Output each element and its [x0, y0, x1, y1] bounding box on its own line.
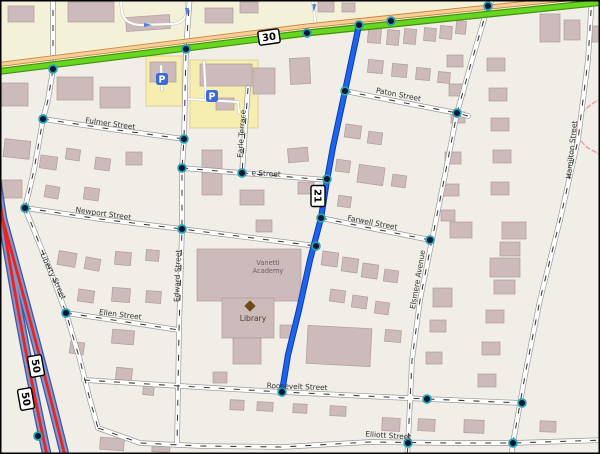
- route-node[interactable]: [426, 236, 434, 244]
- route-node[interactable]: [317, 214, 325, 222]
- building: [450, 222, 472, 238]
- building: [330, 406, 347, 417]
- building: [441, 210, 455, 221]
- building: [335, 159, 351, 173]
- building: [433, 288, 452, 307]
- building: [8, 6, 34, 22]
- building: [318, 0, 334, 12]
- route-shield-30: 30: [258, 29, 281, 46]
- route-node[interactable]: [423, 395, 431, 403]
- building: [240, 190, 264, 205]
- building: [447, 55, 463, 67]
- building: [491, 182, 509, 195]
- building: [341, 257, 359, 273]
- building: [100, 87, 130, 108]
- route-node[interactable]: [182, 45, 190, 53]
- building: [418, 419, 436, 432]
- route-node[interactable]: [303, 29, 311, 37]
- building: [455, 21, 466, 35]
- building: [416, 67, 431, 80]
- academy-label: Academy: [253, 267, 284, 275]
- building: [489, 88, 507, 101]
- building: [367, 131, 383, 145]
- building: [426, 352, 442, 364]
- route-shield-50: 50: [27, 354, 44, 377]
- route-node[interactable]: [312, 242, 320, 250]
- map-viewport[interactable]: 30215050PPLibraryVanettiAcademyFulmer St…: [0, 0, 600, 454]
- building: [367, 59, 383, 73]
- building: [100, 437, 125, 451]
- building: [321, 251, 339, 267]
- building: [337, 195, 351, 208]
- building: [478, 374, 496, 387]
- building: [502, 222, 526, 239]
- building: [83, 187, 100, 201]
- route-node[interactable]: [180, 135, 188, 143]
- building: [438, 71, 451, 83]
- route-node[interactable]: [341, 87, 349, 95]
- building: [44, 185, 60, 199]
- route-node[interactable]: [518, 399, 526, 407]
- academy-label: Vanetti: [256, 259, 279, 267]
- building: [126, 152, 142, 165]
- building: [256, 220, 272, 232]
- building: [77, 289, 95, 303]
- map-canvas[interactable]: 30215050PPLibraryVanettiAcademyFulmer St…: [0, 0, 600, 454]
- route-shield-number: 21: [312, 189, 323, 203]
- building: [486, 310, 504, 323]
- route-node[interactable]: [39, 115, 47, 123]
- building: [500, 242, 520, 256]
- building: [374, 301, 390, 315]
- street-label: Edward Street: [172, 250, 183, 303]
- building: [293, 404, 307, 414]
- building: [146, 290, 162, 303]
- route-node[interactable]: [484, 2, 492, 10]
- building: [200, 64, 252, 86]
- building: [491, 118, 509, 131]
- building: [257, 402, 273, 412]
- building: [382, 418, 401, 432]
- building: [57, 77, 93, 100]
- building: [423, 28, 436, 42]
- route-node[interactable]: [453, 109, 461, 117]
- building: [205, 8, 233, 23]
- building: [0, 83, 28, 106]
- building: [361, 263, 379, 279]
- route-node[interactable]: [387, 17, 395, 25]
- building: [230, 400, 245, 411]
- building: [357, 164, 385, 185]
- building: [493, 150, 511, 163]
- route-shield-50: 50: [17, 387, 34, 410]
- parking-icon: P: [156, 73, 168, 86]
- route-node[interactable]: [34, 432, 42, 440]
- parking-icon-letter: P: [159, 75, 166, 86]
- route-node[interactable]: [238, 169, 246, 177]
- route-node[interactable]: [62, 309, 70, 317]
- building: [57, 251, 77, 268]
- building: [197, 249, 301, 301]
- route-node[interactable]: [49, 65, 57, 73]
- building: [487, 58, 505, 71]
- route-shield-number: 30: [261, 31, 276, 44]
- building: [65, 148, 80, 161]
- parking-icon-letter: P: [209, 92, 216, 103]
- building: [213, 372, 227, 383]
- building: [240, 2, 258, 13]
- route-node[interactable]: [178, 164, 186, 172]
- service-road: [186, 99, 206, 100]
- library-label: Library: [240, 314, 267, 323]
- building: [68, 2, 114, 22]
- building: [540, 14, 560, 42]
- building: [351, 295, 368, 309]
- street-label: e Street: [251, 168, 281, 179]
- route-node[interactable]: [509, 439, 517, 447]
- route-node[interactable]: [21, 204, 29, 212]
- building: [564, 20, 580, 40]
- building: [430, 320, 446, 332]
- route-node[interactable]: [355, 21, 363, 29]
- building: [253, 68, 275, 94]
- parking-icon: P: [206, 90, 218, 103]
- building: [2, 180, 22, 198]
- building: [383, 269, 399, 283]
- building: [494, 280, 515, 294]
- building: [439, 26, 452, 40]
- building: [342, 3, 355, 12]
- route-node[interactable]: [178, 225, 186, 233]
- building: [540, 421, 556, 433]
- building: [482, 342, 500, 355]
- route-node[interactable]: [323, 175, 331, 183]
- building: [306, 325, 372, 366]
- building: [403, 29, 416, 45]
- building: [114, 251, 131, 265]
- building: [39, 155, 58, 170]
- building: [115, 367, 132, 381]
- building: [289, 57, 310, 84]
- building: [287, 147, 308, 163]
- building: [84, 257, 101, 271]
- building: [3, 139, 31, 160]
- building: [386, 30, 399, 46]
- building: [146, 249, 160, 261]
- building: [385, 329, 402, 342]
- building: [391, 174, 407, 188]
- building: [344, 124, 362, 139]
- building: [391, 63, 407, 77]
- building: [111, 329, 134, 345]
- route-shield-21: 21: [311, 186, 325, 207]
- building: [329, 289, 346, 303]
- building: [94, 157, 111, 171]
- building: [233, 338, 261, 364]
- building: [112, 287, 131, 302]
- building: [464, 420, 484, 434]
- building: [490, 258, 520, 277]
